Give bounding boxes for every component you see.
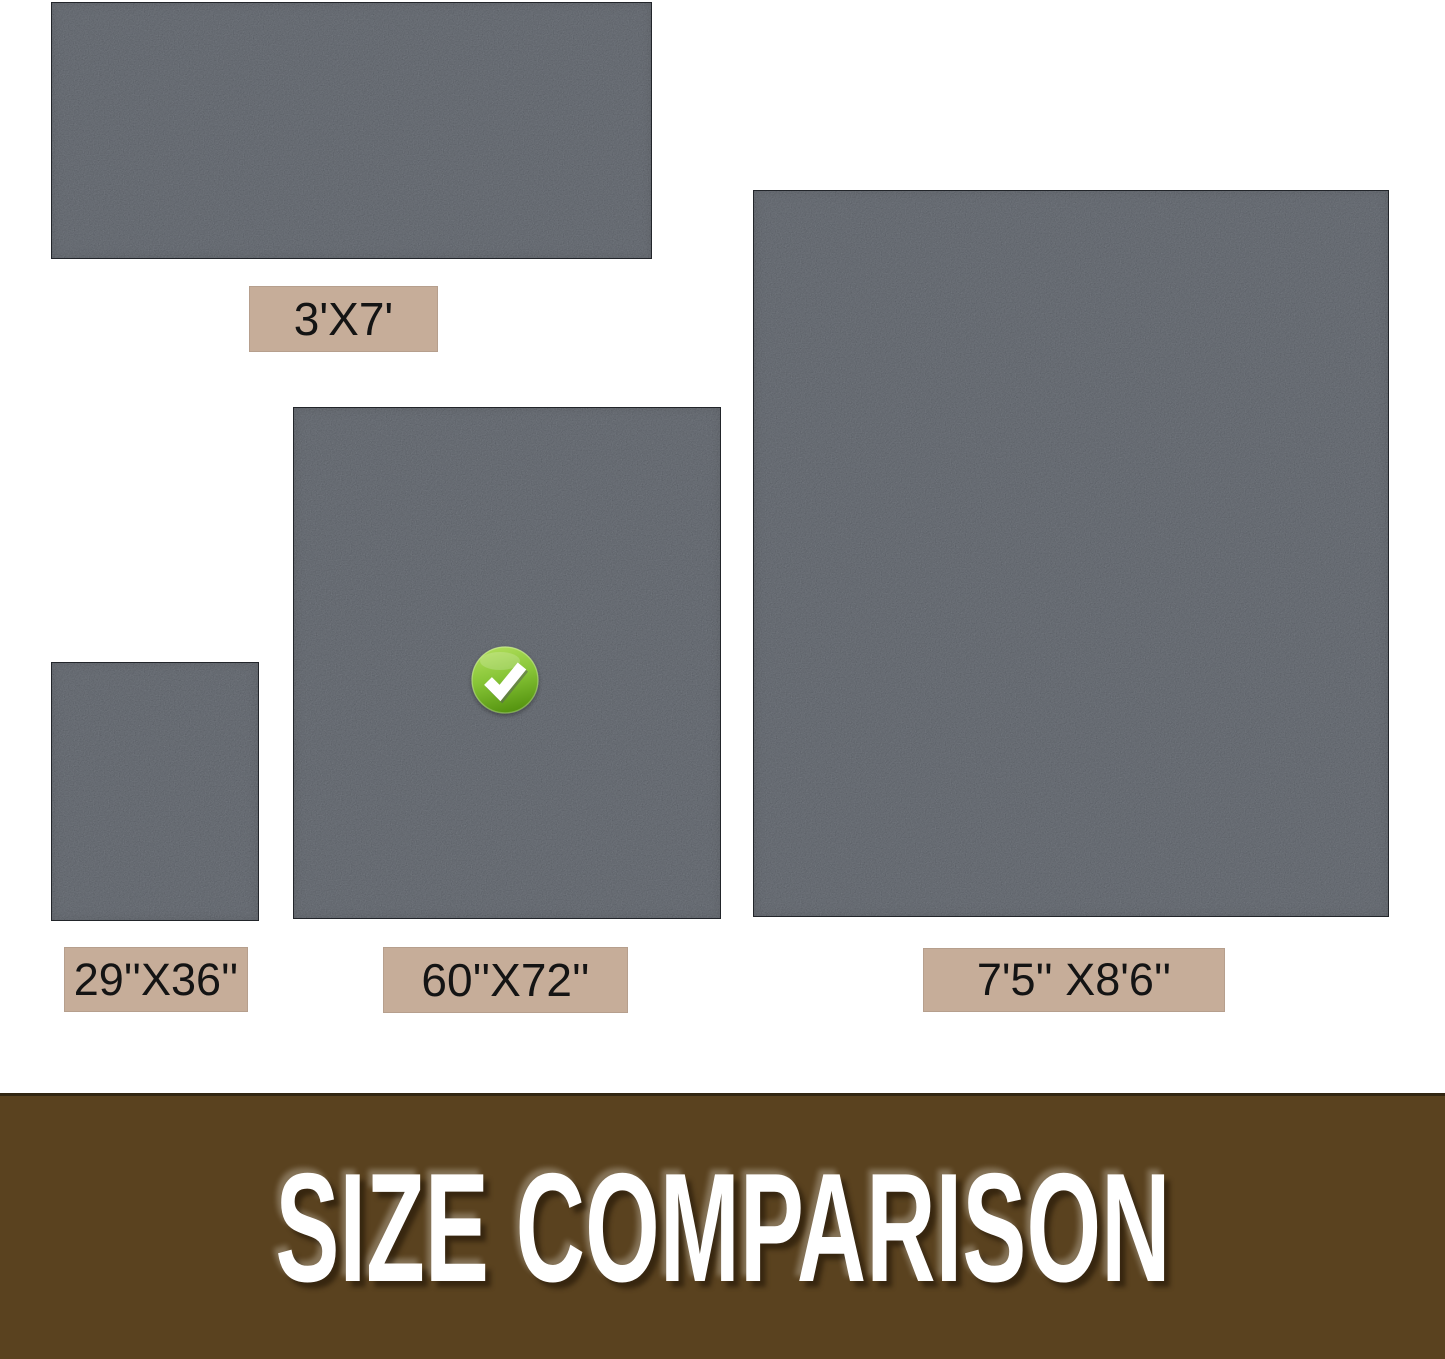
banner: SIZE COMPARISON — [0, 1093, 1445, 1359]
size-comparison-graphic: 3'X7' 29''X36'' 60''X72'' 7'5'' X8'6'' S… — [0, 0, 1445, 1359]
carpet-texture — [754, 191, 1388, 916]
mat-swatch-3x7 — [51, 2, 652, 259]
size-label-60x72: 60''X72'' — [383, 947, 628, 1013]
mat-swatch-7-5x8-6 — [753, 190, 1389, 917]
size-label-29x36: 29''X36'' — [64, 947, 248, 1012]
size-label-29x36-text: 29''X36'' — [74, 954, 239, 1006]
check-icon — [470, 645, 540, 715]
size-label-7-5x8-6-text: 7'5'' X8'6'' — [977, 954, 1171, 1006]
carpet-texture — [52, 663, 258, 920]
size-label-3x7: 3'X7' — [249, 286, 438, 352]
size-label-3x7-text: 3'X7' — [294, 292, 393, 346]
carpet-texture — [52, 3, 651, 258]
banner-title: SIZE COMPARISON — [275, 1150, 1170, 1305]
mat-swatch-29x36 — [51, 662, 259, 921]
size-label-7-5x8-6: 7'5'' X8'6'' — [923, 948, 1225, 1012]
size-label-60x72-text: 60''X72'' — [421, 953, 589, 1007]
